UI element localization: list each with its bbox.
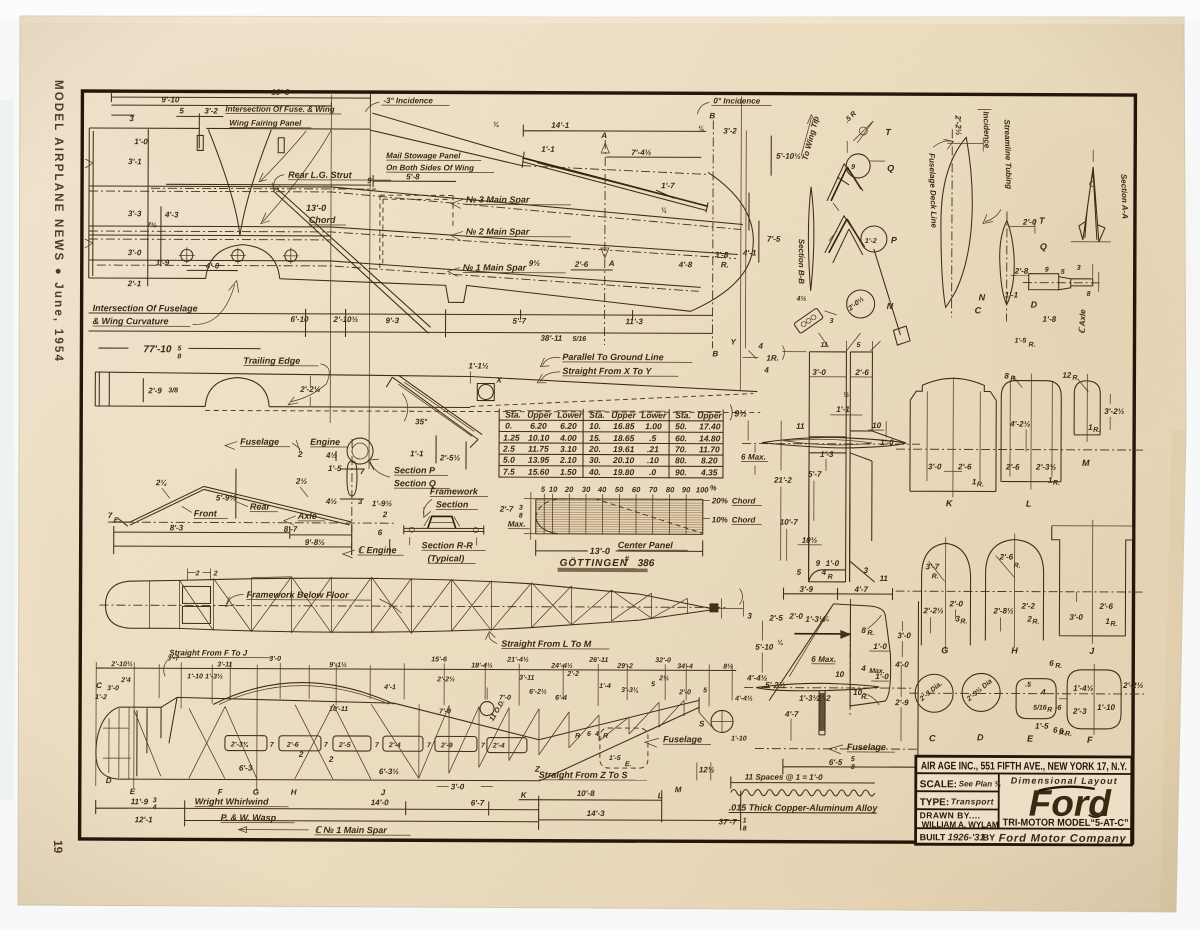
svg-text:8: 8: [177, 353, 181, 360]
svg-text:R.: R.: [932, 573, 939, 580]
svg-text:On Both Sides Of Wing: On Both Sides Of Wing: [386, 163, 474, 172]
svg-text:2'-6: 2'-6: [1098, 602, 1113, 611]
svg-text:C: C: [929, 733, 936, 743]
svg-text:Chord: Chord: [732, 515, 757, 524]
svg-text:6: 6: [1049, 659, 1054, 668]
svg-text:3: 3: [747, 612, 752, 621]
svg-text:2'-6: 2'-6: [854, 368, 869, 377]
svg-text:11 Spaces @ 1 = 1'-0: 11 Spaces @ 1 = 1'-0: [745, 773, 823, 782]
svg-text:4'-7: 4'-7: [854, 585, 869, 594]
svg-text:¼: ¼: [661, 207, 667, 214]
svg-text:5: 5: [177, 345, 181, 352]
svg-text:1'-8: 1'-8: [1043, 315, 1057, 324]
svg-text:1'-4: 1'-4: [599, 683, 611, 690]
svg-text:BUILT: BUILT: [920, 832, 946, 842]
svg-text:F: F: [1087, 735, 1093, 745]
svg-text:2'-6: 2'-6: [574, 260, 589, 269]
svg-text:R.: R.: [1053, 480, 1060, 487]
svg-text:ℂ Engine: ℂ Engine: [358, 545, 397, 555]
svg-text:4: 4: [821, 568, 827, 577]
svg-text:№ 3 Main Spar: № 3 Main Spar: [466, 194, 530, 204]
svg-text:3'-2½: 3'-2½: [1104, 407, 1124, 416]
svg-text:2: 2: [328, 755, 334, 764]
svg-text:1'-1: 1'-1: [836, 405, 850, 414]
svg-text:D: D: [977, 732, 984, 742]
svg-text:Rear: Rear: [250, 502, 271, 512]
svg-text:2'-2½: 2'-2½: [1122, 681, 1143, 690]
svg-text:15.60: 15.60: [528, 467, 550, 477]
svg-text:10½: 10½: [802, 536, 818, 545]
svg-text:9'-10: 9'-10: [161, 95, 179, 104]
svg-text:B: B: [709, 111, 715, 120]
svg-text:6'-2½: 6'-2½: [529, 688, 547, 696]
svg-text:35°: 35°: [415, 417, 428, 426]
svg-text:2'-8½: 2'-8½: [992, 606, 1013, 615]
svg-text:60: 60: [632, 485, 641, 494]
svg-text:1'-0: 1'-0: [134, 137, 148, 146]
svg-text:2'-3½: 2'-3½: [1035, 463, 1056, 472]
svg-text:11'-3: 11'-3: [626, 317, 644, 326]
svg-text:9'-1½: 9'-1½: [329, 661, 347, 669]
svg-text:2'-0: 2'-0: [948, 599, 963, 608]
svg-text:X: X: [495, 376, 502, 385]
svg-text:6: 6: [1053, 726, 1058, 735]
svg-text:3'-3¼: 3'-3¼: [621, 687, 639, 694]
svg-text:#: #: [625, 554, 630, 563]
svg-text:3'-0: 3'-0: [928, 462, 942, 471]
svg-text:1'-9½: 1'-9½: [372, 499, 392, 508]
svg-text:A: A: [600, 131, 607, 140]
svg-text:6.20: 6.20: [560, 421, 577, 431]
svg-text:2½: 2½: [658, 674, 669, 682]
svg-text:5/16: 5/16: [572, 336, 586, 343]
svg-text:R.: R.: [1032, 619, 1039, 626]
svg-text:R: R: [1047, 707, 1052, 714]
svg-text:& Wing Curvature: & Wing Curvature: [93, 316, 169, 326]
svg-text:Center Panel: Center Panel: [618, 540, 674, 550]
svg-text:5'-8: 5'-8: [406, 172, 420, 181]
svg-text:2'-0: 2'-0: [1022, 218, 1037, 227]
svg-text:R.: R.: [1110, 621, 1117, 628]
svg-text:J: J: [381, 788, 386, 797]
svg-text:386: 386: [638, 558, 655, 569]
svg-text:Q: Q: [1040, 242, 1047, 252]
svg-text:¼: ¼: [823, 616, 829, 623]
svg-text:9: 9: [367, 176, 372, 185]
svg-text:(Typical): (Typical): [428, 553, 465, 563]
svg-text:8: 8: [861, 626, 866, 635]
svg-text:8: 8: [1004, 372, 1009, 381]
svg-text:2'-5: 2'-5: [768, 614, 783, 623]
svg-text:4'-4½: 4'-4½: [734, 694, 753, 702]
svg-text:N: N: [979, 292, 986, 302]
svg-text:B: B: [712, 349, 718, 358]
svg-text:6'-4: 6'-4: [555, 695, 567, 702]
svg-text:7'-4½: 7'-4½: [631, 148, 651, 157]
svg-text:14'-1: 14'-1: [551, 121, 569, 130]
svg-text:Framework Below Floor: Framework Below Floor: [246, 590, 349, 600]
svg-text:90: 90: [682, 485, 691, 494]
svg-text:Upper: Upper: [527, 410, 552, 420]
svg-text:6'-7: 6'-7: [471, 798, 485, 807]
svg-text:2'-6: 2'-6: [286, 742, 299, 749]
svg-text:TYPE:: TYPE:: [920, 797, 949, 808]
svg-text:3: 3: [830, 318, 834, 325]
svg-text:4½: 4½: [325, 497, 337, 506]
svg-text:2'-8: 2'-8: [1014, 267, 1029, 276]
svg-text:R.: R.: [1072, 375, 1079, 382]
svg-text:1'-0: 1'-0: [875, 672, 889, 681]
svg-text:ℂ № 1 Main Spar: ℂ № 1 Main Spar: [315, 825, 388, 835]
svg-text:2'-7: 2'-7: [499, 505, 514, 514]
svg-text:11'-9: 11'-9: [131, 797, 149, 806]
svg-text:1'-4½: 1'-4½: [1073, 684, 1093, 693]
svg-text:3.10: 3.10: [560, 444, 577, 454]
svg-text:13'-0: 13'-0: [590, 546, 610, 556]
svg-text:37'-7: 37'-7: [719, 817, 737, 826]
svg-text:Intersection Of Fuselage: Intersection Of Fuselage: [93, 303, 198, 313]
svg-text:12'-1: 12'-1: [135, 815, 153, 824]
svg-text:4: 4: [763, 366, 769, 375]
svg-text:D: D: [106, 776, 112, 785]
svg-text:5/16: 5/16: [1033, 705, 1047, 712]
svg-text:Wing Fairing Panel: Wing Fairing Panel: [229, 119, 302, 128]
svg-text:ℂ Axle: ℂ Axle: [1078, 309, 1088, 334]
svg-text:4'-8: 4'-8: [678, 260, 693, 269]
svg-text:1'-1½: 1'-1½: [468, 361, 488, 370]
svg-text:G: G: [941, 645, 948, 655]
svg-text:3'-0: 3'-0: [107, 685, 119, 692]
svg-text:C: C: [96, 681, 102, 690]
svg-text:10: 10: [872, 421, 881, 430]
svg-text:M: M: [675, 785, 682, 794]
svg-text:Max.: Max.: [818, 655, 836, 664]
svg-text:1.00: 1.00: [645, 421, 662, 431]
svg-text:2.5: 2.5: [502, 444, 515, 454]
svg-text:Straight From L To M: Straight From L To M: [501, 639, 592, 649]
svg-text:4'-1: 4'-1: [742, 249, 757, 258]
svg-text:R.: R.: [1055, 663, 1062, 670]
svg-text:1'-0: 1'-0: [873, 642, 887, 651]
svg-text:.0: .0: [649, 467, 656, 477]
svg-text:¼: ¼: [698, 125, 704, 132]
svg-text:18'-4½: 18'-4½: [471, 661, 493, 669]
svg-text:R.: R.: [867, 630, 874, 637]
svg-text:2'-3: 2'-3: [1072, 707, 1087, 716]
svg-text:6'-5: 6'-5: [829, 758, 843, 767]
svg-text:.5: .5: [649, 433, 656, 443]
svg-text:7'-5: 7'-5: [767, 235, 781, 244]
svg-text:20%: 20%: [711, 496, 728, 505]
svg-text:Chord: Chord: [309, 215, 336, 225]
svg-text:2'-9: 2'-9: [147, 386, 162, 395]
svg-text:5.0: 5.0: [503, 455, 515, 465]
svg-text:4'-0: 4'-0: [205, 261, 220, 270]
svg-text:7: 7: [108, 511, 113, 520]
svg-text:77'-10: 77'-10: [143, 344, 171, 355]
svg-text:3'-9: 3'-9: [800, 585, 814, 594]
svg-text:R.: R.: [1093, 427, 1100, 434]
svg-text:100: 100: [696, 485, 709, 494]
svg-text:11: 11: [796, 422, 805, 431]
svg-text:13'-0: 13'-0: [306, 203, 326, 213]
svg-text:1'-5: 1'-5: [328, 464, 342, 473]
svg-text:1'-5: 1'-5: [1014, 338, 1026, 345]
svg-text:20: 20: [564, 485, 574, 494]
svg-text:2'-4: 2'-4: [492, 743, 505, 750]
svg-text:80: 80: [666, 485, 675, 494]
svg-text:3'-0: 3'-0: [269, 656, 281, 663]
svg-text:7: 7: [360, 467, 365, 476]
svg-text:2: 2: [298, 750, 304, 759]
svg-text:20.10: 20.10: [612, 455, 635, 465]
svg-text:Transport: Transport: [951, 796, 995, 806]
svg-text:9½: 9½: [529, 259, 540, 268]
svg-text:2'-1: 2'-1: [127, 279, 142, 288]
svg-text:5'-10: 5'-10: [755, 643, 773, 652]
svg-text:Upper: Upper: [611, 410, 636, 420]
svg-text:.015 Thick Copper-Aluminum All: .015 Thick Copper-Aluminum Alloy: [729, 802, 879, 813]
svg-text:5: 5: [797, 568, 802, 577]
svg-text:E: E: [1027, 734, 1034, 744]
svg-text:40.: 40.: [588, 467, 601, 477]
svg-text:24'-4½: 24'-4½: [550, 662, 573, 670]
svg-text:3: 3: [153, 797, 157, 804]
svg-text:4: 4: [757, 342, 763, 351]
svg-text:30: 30: [582, 485, 591, 494]
svg-text:3'-8: 3'-8: [715, 250, 729, 259]
svg-text:1'-2: 1'-2: [95, 694, 107, 701]
svg-text:Trailing Edge: Trailing Edge: [243, 356, 300, 366]
svg-text:S: S: [699, 719, 705, 728]
svg-text:GÖTTINGEN: GÖTTINGEN: [560, 556, 629, 569]
svg-text:Q: Q: [887, 163, 894, 173]
svg-text:5'-2½: 5'-2½: [765, 681, 785, 690]
svg-text:½: ½: [843, 391, 849, 399]
svg-text:5: 5: [651, 681, 655, 688]
svg-text:2'-0: 2'-0: [678, 689, 691, 696]
svg-text:6'-3: 6'-3: [239, 764, 253, 773]
svg-text:1'-1: 1'-1: [410, 449, 424, 458]
svg-text:4: 4: [152, 804, 157, 811]
svg-text:P: P: [891, 235, 898, 245]
svg-text:5'-10½: 5'-10½: [776, 152, 801, 161]
svg-text:Sta.: Sta.: [589, 410, 605, 420]
svg-text:16.85: 16.85: [613, 421, 635, 431]
svg-text:5'-7: 5'-7: [513, 317, 527, 326]
svg-text:2: 2: [195, 570, 200, 577]
svg-text:29'-2: 29'-2: [616, 663, 633, 670]
svg-text:26'-11: 26'-11: [588, 657, 608, 664]
svg-text:1'-10: 1'-10: [1097, 703, 1115, 712]
svg-text:9: 9: [851, 164, 855, 171]
svg-text:2: 2: [297, 450, 303, 459]
svg-text:Straight From F To J: Straight From F To J: [169, 648, 248, 657]
svg-text:L: L: [1026, 499, 1032, 509]
svg-text:1'-5: 1'-5: [1035, 722, 1049, 731]
svg-text:14'-3: 14'-3: [587, 809, 605, 818]
svg-text:Parallel To Ground Line: Parallel To Ground Line: [562, 352, 663, 362]
svg-text:E.: E.: [114, 517, 121, 524]
svg-text:MODEL AIRPLANE NEWS ● June, 19: MODEL AIRPLANE NEWS ● June, 1954: [52, 80, 64, 363]
svg-text:2'-4: 2'-4: [388, 742, 401, 749]
svg-text:1.50: 1.50: [560, 467, 577, 477]
svg-text:2'-2: 2'-2: [566, 671, 579, 678]
svg-text:3: 3: [519, 505, 523, 512]
svg-text:Section R-R: Section R-R: [422, 540, 474, 550]
svg-text:3/8: 3/8: [168, 387, 178, 394]
svg-text:13.95: 13.95: [528, 455, 550, 465]
svg-text:1'-10: 1'-10: [187, 673, 203, 680]
svg-text:A: A: [608, 259, 615, 268]
svg-text:14.80: 14.80: [699, 433, 721, 443]
svg-text:6'-10: 6'-10: [291, 315, 309, 324]
svg-text:8: 8: [851, 764, 855, 771]
svg-text:5: 5: [856, 342, 860, 349]
svg-text:19.80: 19.80: [613, 467, 635, 477]
svg-text:H: H: [291, 788, 297, 797]
svg-text:1926-'31: 1926-'31: [948, 832, 985, 843]
svg-text:.21: .21: [647, 444, 659, 454]
svg-text:Engine: Engine: [310, 437, 340, 447]
svg-text:8'-7: 8'-7: [284, 525, 298, 534]
svg-text:7.5: 7.5: [503, 467, 515, 477]
svg-text:Incidence: Incidence: [981, 111, 991, 149]
svg-text:1R.: 1R.: [766, 354, 778, 363]
svg-text:¼: ¼: [493, 122, 499, 129]
svg-text:2'-9: 2'-9: [894, 698, 909, 707]
svg-text:4½: 4½: [796, 295, 807, 303]
svg-text:4'-4½: 4'-4½: [746, 674, 767, 683]
svg-text:%: %: [710, 483, 717, 492]
svg-text:9'-3: 9'-3: [386, 316, 400, 325]
svg-text:1'-10: 1'-10: [731, 735, 747, 742]
svg-text:9'-8½: 9'-8½: [305, 538, 325, 547]
svg-text:0° Incidence: 0° Incidence: [713, 96, 760, 105]
svg-text:4'-2½: 4'-2½: [1009, 420, 1030, 429]
svg-text:19'-8: 19'-8: [271, 88, 289, 97]
svg-text:TRI-MOTOR MODEL“5-AT-C”: TRI-MOTOR MODEL“5-AT-C”: [1003, 818, 1129, 829]
svg-text:2'-2½: 2'-2½: [436, 675, 455, 683]
svg-text:4'-1: 4'-1: [383, 684, 396, 691]
svg-text:9½: 9½: [734, 408, 747, 418]
svg-text:8: 8: [519, 513, 523, 520]
svg-text:3: 3: [1077, 265, 1081, 272]
svg-text:11.70: 11.70: [699, 444, 720, 454]
svg-text:Sta.: Sta.: [505, 410, 521, 420]
svg-text:Front: Front: [194, 508, 218, 518]
svg-text:C: C: [975, 305, 982, 315]
svg-text:№ 2 Main Spar: № 2 Main Spar: [466, 226, 530, 236]
svg-text:-6: -6: [1055, 705, 1061, 712]
svg-text:20.: 20.: [588, 444, 601, 454]
svg-text:8.20: 8.20: [701, 455, 718, 465]
svg-text:R: R: [828, 574, 833, 581]
svg-text:Straight From Z To S: Straight From Z To S: [539, 770, 628, 780]
svg-text:Fuselage: Fuselage: [847, 742, 886, 752]
svg-text:R.: R.: [977, 481, 984, 488]
svg-text:34'-4: 34'-4: [677, 663, 693, 670]
svg-text:H: H: [1011, 646, 1018, 656]
svg-text:1'-5: 1'-5: [609, 755, 621, 762]
svg-text:3'-0: 3'-0: [897, 631, 911, 640]
svg-text:5'-9½: 5'-9½: [216, 493, 236, 502]
svg-text:6'-3½: 6'-3½: [379, 767, 399, 776]
svg-text:3'-1: 3'-1: [128, 157, 142, 166]
svg-text:15.: 15.: [589, 433, 601, 443]
svg-text:R.: R.: [721, 260, 729, 269]
svg-text:11.75: 11.75: [528, 444, 549, 454]
svg-text:21'-4½: 21'-4½: [506, 656, 529, 664]
svg-text:Lower: Lower: [557, 410, 583, 420]
svg-text:1'-7: 1'-7: [661, 181, 675, 190]
svg-text:15'-6: 15'-6: [431, 656, 447, 663]
svg-text:1'-1: 1'-1: [1005, 291, 1019, 300]
svg-text:Fuselage: Fuselage: [240, 437, 279, 447]
svg-text:1.25: 1.25: [503, 433, 520, 443]
svg-text:3'-7: 3'-7: [926, 562, 940, 571]
svg-text:19: 19: [51, 840, 65, 854]
svg-text:3'-2: 3'-2: [204, 106, 218, 115]
svg-text:4: 4: [1040, 688, 1046, 697]
svg-text:R.: R.: [1028, 342, 1035, 349]
svg-text:2'-0: 2'-0: [788, 612, 803, 621]
svg-text:60.: 60.: [675, 433, 687, 443]
svg-text:Max.: Max.: [508, 520, 526, 529]
svg-text:R.: R.: [1010, 376, 1017, 383]
svg-text:5: 5: [1061, 269, 1065, 276]
svg-text:Upper: Upper: [697, 410, 722, 420]
svg-text:3'-0: 3'-0: [812, 368, 826, 377]
svg-text:1'-2: 1'-2: [865, 238, 877, 245]
svg-text:WILLIAM A. WYLAM: WILLIAM A. WYLAM: [922, 819, 999, 829]
svg-text:2½: 2½: [295, 477, 307, 486]
svg-text:1'-0: 1'-0: [880, 438, 894, 447]
svg-text:R.: R.: [1065, 731, 1072, 738]
svg-text:Section B-B: Section B-B: [797, 239, 806, 285]
svg-text:2'-5½: 2'-5½: [439, 453, 460, 462]
svg-text:2'-2½: 2'-2½: [953, 114, 963, 136]
svg-text:4.35: 4.35: [700, 467, 718, 477]
svg-text:.10: .10: [647, 455, 659, 465]
svg-text:50.: 50.: [675, 421, 687, 431]
svg-text:Section: Section: [436, 499, 469, 509]
svg-text:4: 4: [594, 731, 599, 738]
svg-text:8: 8: [1087, 291, 1091, 298]
svg-text:Intersection Of Fuse. & Wing: Intersection Of Fuse. & Wing: [225, 105, 334, 114]
svg-text:Section P: Section P: [394, 465, 436, 475]
svg-text:2.10: 2.10: [559, 455, 577, 465]
svg-text:3: 3: [358, 497, 363, 506]
svg-text:3'-11: 3'-11: [217, 662, 232, 669]
svg-text:19.61: 19.61: [613, 444, 635, 454]
svg-text:12½: 12½: [699, 765, 715, 774]
svg-text:E: E: [130, 787, 136, 796]
svg-text:Ford Motor Company: Ford Motor Company: [999, 833, 1127, 845]
svg-text:№ 1 Main Spar: № 1 Main Spar: [463, 262, 527, 272]
svg-text:D: D: [1031, 300, 1038, 310]
svg-text:4'-3: 4'-3: [164, 210, 179, 219]
svg-text:2'-10½: 2'-10½: [333, 315, 359, 324]
svg-text:2'-10½: 2'-10½: [110, 660, 133, 668]
svg-text:6: 6: [587, 731, 591, 738]
svg-text:1'-0: 1'-0: [826, 559, 840, 568]
svg-text:3'-3: 3'-3: [128, 209, 142, 218]
svg-text:3'-0: 3'-0: [128, 248, 142, 257]
svg-text:Mail Stowage Panel: Mail Stowage Panel: [386, 151, 461, 160]
svg-text:See Plan ¾: See Plan ¾: [959, 779, 1002, 788]
svg-text:Y: Y: [730, 337, 736, 346]
